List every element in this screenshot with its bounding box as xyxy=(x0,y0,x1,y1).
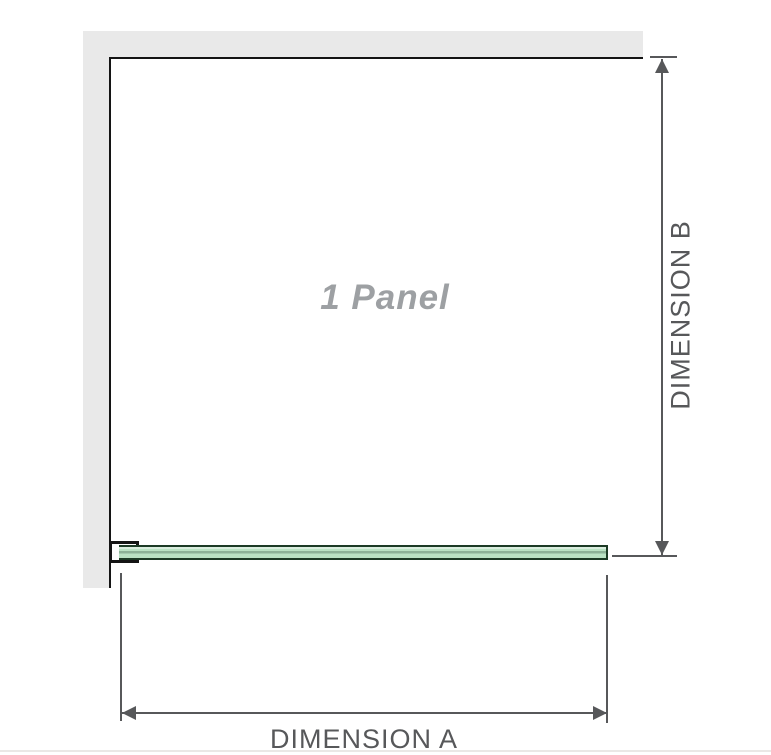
dimension-b-top-tick xyxy=(650,56,677,58)
wall-top-strip xyxy=(83,31,643,57)
dimension-a-line xyxy=(122,712,607,714)
dimension-b-line xyxy=(661,59,663,555)
diagram-canvas: 1 Panel DIMENSION B DIMENSION A xyxy=(0,0,771,755)
arrow-down-icon xyxy=(655,541,669,555)
glass-panel-bar xyxy=(119,545,608,560)
panel-outline-top-edge xyxy=(109,57,643,59)
dimension-a-right-extension-line xyxy=(606,575,608,723)
wall-left-bar xyxy=(83,31,109,588)
arrow-up-icon xyxy=(655,59,669,73)
panel-count-label: 1 Panel xyxy=(320,278,450,318)
dimension-b-label: DIMENSION B xyxy=(666,220,697,410)
dimension-b-bottom-tick xyxy=(612,555,677,557)
arrow-left-icon xyxy=(122,706,136,720)
arrow-right-icon xyxy=(593,706,607,720)
dimension-a-left-extension-line xyxy=(120,573,122,721)
panel-outline-left-edge xyxy=(109,57,111,588)
bottom-separator-line xyxy=(0,750,771,752)
